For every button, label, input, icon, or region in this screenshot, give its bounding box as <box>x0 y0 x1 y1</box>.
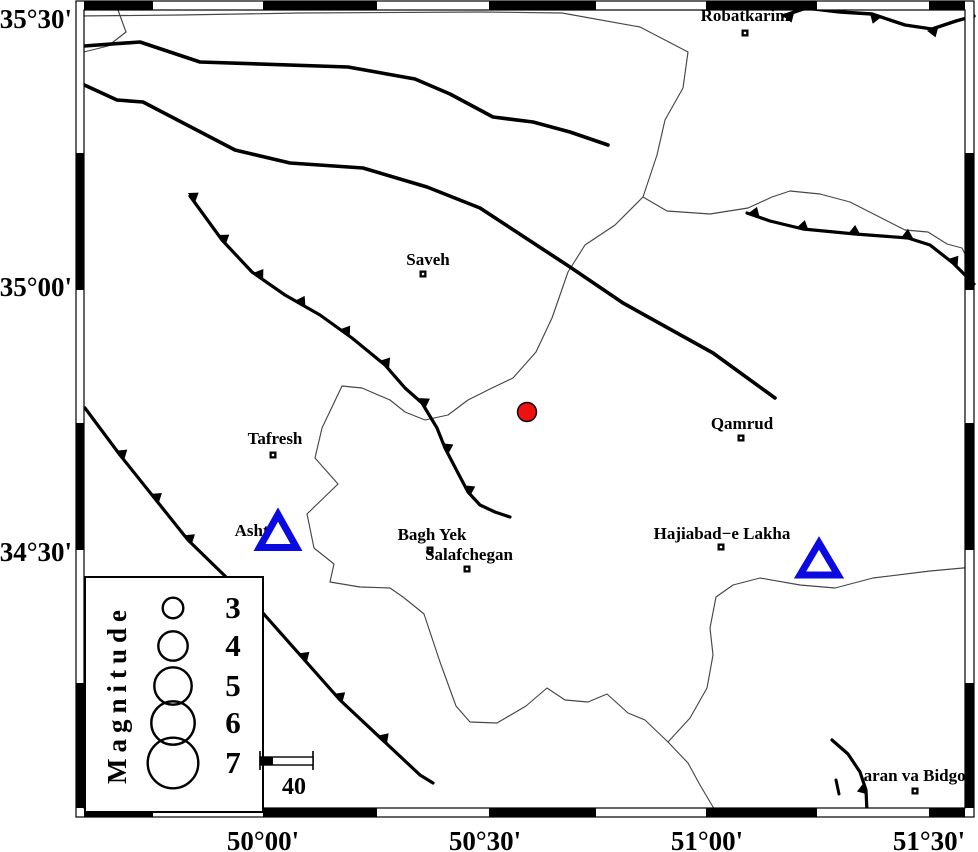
latitude-label: 35°30' <box>0 4 72 34</box>
city-marker-center <box>272 454 274 456</box>
city-label: Salafchegan <box>425 545 513 564</box>
city-label: Saveh <box>406 250 450 269</box>
frame-segment-left <box>76 423 84 550</box>
frame-segment-right <box>965 683 974 808</box>
longitude-label: 51°00' <box>671 826 743 852</box>
city-marker-center <box>744 32 746 34</box>
frame-segment-bottom <box>263 808 377 817</box>
seismicity-map: RobatkarimSavehTafreshAshtianBagh YekSal… <box>0 0 978 852</box>
longitude-label: 50°30' <box>449 826 521 852</box>
frame-segment-top <box>263 1 377 10</box>
longitude-label: 51°30' <box>893 826 965 852</box>
frame-segment-top <box>84 1 153 10</box>
frame-segment-right <box>965 423 974 550</box>
city-marker-center <box>422 273 424 275</box>
city-marker-center <box>720 546 722 548</box>
frame-segment-bottom <box>706 808 817 817</box>
city-marker-center <box>466 568 468 570</box>
latitude-label: 35°00' <box>0 272 72 302</box>
earthquake-epicenter-icon <box>518 403 537 422</box>
frame-segment-top <box>489 1 596 10</box>
city-marker-center <box>914 790 916 792</box>
legend-magnitude-value: 4 <box>225 628 241 663</box>
frame-segment-bottom <box>929 808 965 817</box>
legend-title: Magnitude <box>102 604 132 784</box>
epicenter-layer <box>518 403 537 422</box>
scalebar-black-segment <box>260 757 273 765</box>
legend-magnitude-value: 3 <box>225 590 241 625</box>
frame-segment-top <box>706 1 817 10</box>
city-label: Bagh Yek <box>398 525 467 544</box>
city-label: Qamrud <box>711 414 774 433</box>
legend-magnitude-value: 7 <box>225 745 241 780</box>
frame-segment-bottom <box>489 808 596 817</box>
frame-segment-left <box>76 153 84 290</box>
longitude-label: 50°00' <box>227 826 299 852</box>
frame-segment-left <box>76 683 84 808</box>
frame-segment-right <box>965 153 974 290</box>
latitude-label: 34°30' <box>0 537 72 567</box>
scalebar-distance-label: 40 <box>282 774 306 800</box>
city-label: Hajiabad−e Lakha <box>654 524 791 543</box>
legend-magnitude-value: 5 <box>225 668 241 703</box>
magnitude-legend: Magnitude34567 <box>85 577 263 812</box>
city-label: aran va Bidgol <box>864 766 971 785</box>
frame-segment-top <box>929 1 965 10</box>
city-label: Tafresh <box>248 429 303 448</box>
legend-magnitude-value: 6 <box>225 705 241 740</box>
city-marker-center <box>740 437 742 439</box>
map-canvas: RobatkarimSavehTafreshAshtianBagh YekSal… <box>0 0 978 852</box>
